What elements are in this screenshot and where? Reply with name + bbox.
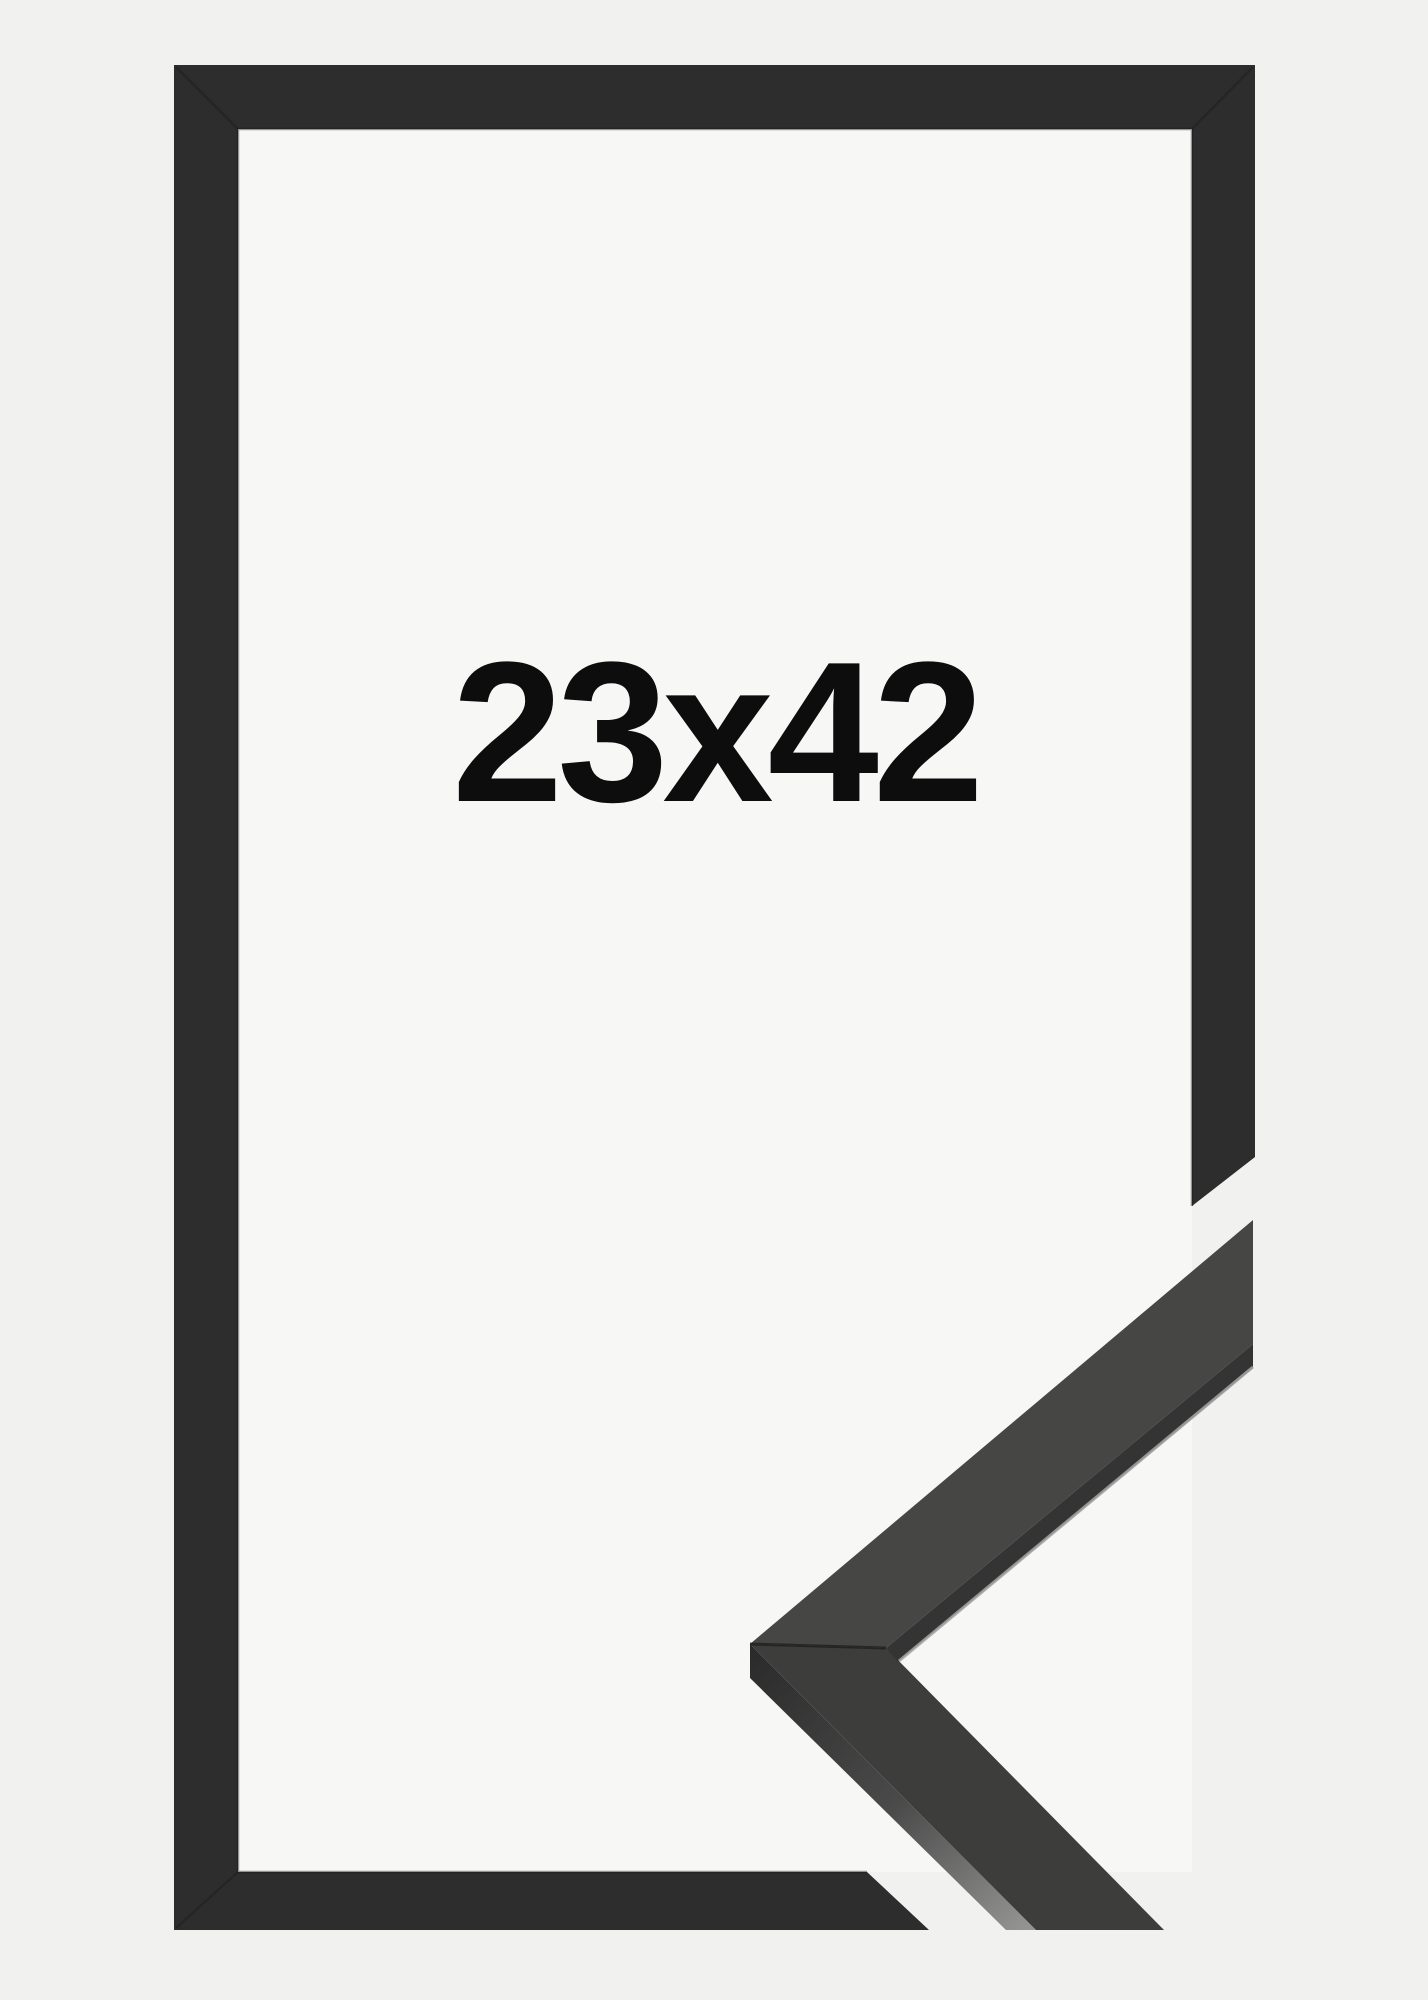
frame-opening xyxy=(238,129,1192,1872)
product-photo: 23x42 xyxy=(0,0,1428,2000)
frame-illustration xyxy=(0,0,1428,2000)
frame-size-label: 23x42 xyxy=(452,633,978,833)
